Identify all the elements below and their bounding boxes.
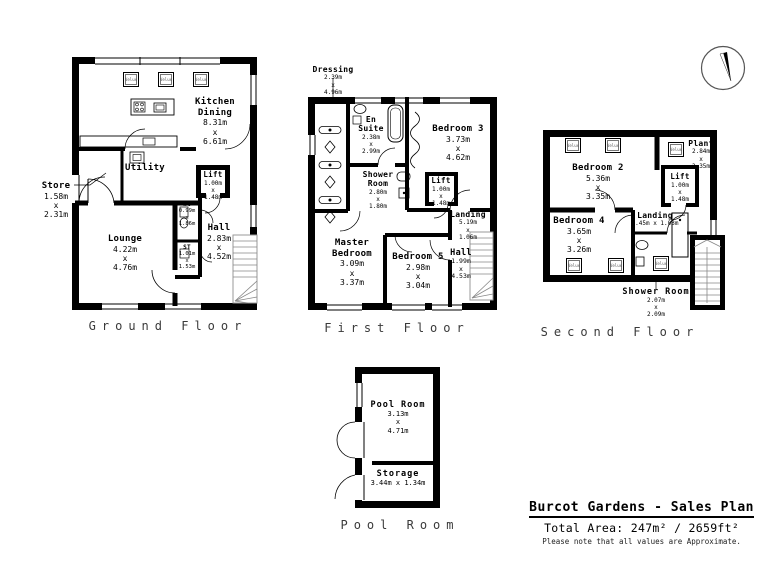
second-floor-label: Second Floor: [541, 325, 700, 339]
sales-plan-page: Velux Velux Velux Kitchen Dining 8.31m x…: [0, 0, 768, 576]
room-label-lift: Lift 1.00m x 1.48m: [193, 171, 233, 201]
room-label-shower-room: Shower Room 2.80m x 1.80m: [355, 170, 401, 210]
velux-label: Velux: [195, 74, 207, 85]
window: [308, 135, 317, 155]
kitchen-island: [131, 99, 174, 115]
compass-north-icon: [697, 42, 751, 96]
room-label-hall: Hall 1.99m x 4.53m: [450, 248, 472, 281]
velux-window: Velux: [608, 258, 624, 273]
pool-room-walls-drawing: [330, 350, 470, 545]
room-label-bedroom-5: Bedroom 5 2.98m x 3.04m: [392, 252, 443, 291]
room-label-kitchen-dining: Kitchen Dining 8.31m x 6.61m: [184, 97, 246, 147]
ground-floor-plan: Velux Velux Velux Kitchen Dining 8.31m x…: [30, 45, 278, 345]
velux-window: Velux: [653, 256, 669, 271]
ground-floor-label: Ground Floor: [89, 319, 248, 333]
double-door: [337, 422, 364, 458]
pool-room-plan: Pool Room 3.13m x 4.71m Storage 3.44m x …: [330, 350, 470, 545]
room-label-plant: Plant 2.84m x 3.35m: [688, 139, 714, 170]
plan-title: Burcot Gardens - Sales Plan: [529, 500, 754, 518]
window: [355, 96, 470, 105]
second-floor-plan: Velux Velux Velux Velux Velux Velux Bedr…: [535, 95, 747, 375]
room-label-pool-room: Pool Room 3.13m x 4.71m: [370, 400, 425, 435]
velux-window: Velux: [566, 258, 582, 273]
room-label-storage: Storage 3.44m x 1.34m: [371, 469, 426, 487]
velux-window: Velux: [158, 72, 174, 87]
room-label-shower-room: Shower Room 2.07m x 2.09m: [622, 287, 689, 318]
window: [355, 383, 364, 407]
disclaimer-note: Please note that all values are Approxim…: [529, 537, 754, 546]
room-label-landing: Landing 4.45m x 1.03m: [632, 211, 679, 228]
room-label-en-suite: En Suite 2.38m x 2.99m: [353, 115, 389, 155]
pool-room-label: Pool Room: [340, 518, 459, 532]
first-floor-plan: Dressing 2.39m x 4.96m En Suite 2.38m x …: [300, 60, 510, 350]
room-label-dressing: Dressing 2.39m x 4.96m: [313, 65, 354, 96]
first-floor-walls-drawing: [300, 60, 510, 350]
room-label-landing: Landing 5.19m x 1.06m: [450, 210, 486, 241]
velux-window: Velux: [668, 142, 684, 157]
staircase: [470, 232, 493, 300]
room-label-hall: Hall 2.83m x 4.52m: [196, 223, 242, 262]
velux-label: Velux: [125, 74, 137, 85]
velux-window: Velux: [123, 72, 139, 87]
room-label-bedroom-2: Bedroom 2 5.36m x 3.35m: [572, 163, 623, 202]
window: [327, 303, 462, 312]
total-area: Total Area: 247m² / 2659ft²: [529, 521, 754, 535]
room-label-lounge: Lounge 4.22m x 4.76m: [95, 234, 155, 273]
room-label-master-bedroom: Master Bedroom 3.09m x 3.37m: [321, 238, 383, 288]
window: [95, 56, 220, 65]
velux-window: Velux: [605, 138, 621, 153]
first-floor-label: First Floor: [324, 321, 469, 335]
room-label-utility: Utility: [115, 163, 175, 174]
door: [335, 475, 364, 500]
velux-window: Velux: [193, 72, 209, 87]
room-label-store: Store 1.58m x 2.31m: [33, 181, 79, 220]
staircase: [693, 238, 723, 308]
room-label-bedroom-3: Bedroom 3 3.73m x 4.62m: [432, 124, 483, 163]
velux-label: Velux: [160, 74, 172, 85]
velux-window: Velux: [565, 138, 581, 153]
title-block: Burcot Gardens - Sales Plan Total Area: …: [529, 500, 754, 546]
room-label-lift: Lift 1.00m x 1.48m: [670, 173, 689, 203]
room-label-lift: Lift 1.00m x 1.48m: [431, 177, 450, 207]
room-label-bedroom-4: Bedroom 4 3.65m x 3.26m: [553, 216, 604, 255]
